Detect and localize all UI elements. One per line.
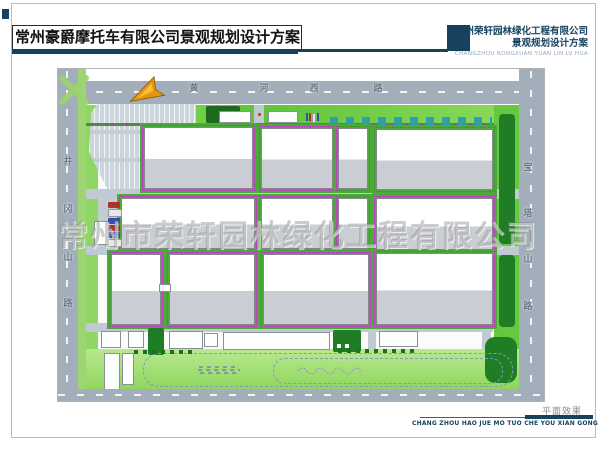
gatehouse: [268, 111, 298, 123]
shrub-blocks: [330, 117, 492, 126]
footer-caption-text: CHANG ZHOU HAO JUE MO TUO CHE YOU XIAN G…: [412, 420, 600, 427]
gate-flag: [258, 113, 261, 116]
firm-block: 常州荣轩园林绿化工程有限公司 景观规划设计方案 CHANGZHOU RONGXU…: [380, 26, 588, 59]
road-label-west-char: 井: [62, 157, 74, 168]
factory-building: [144, 127, 253, 189]
footer-rule-thin: [420, 417, 525, 418]
car: [312, 113, 316, 123]
factory-building: [376, 129, 493, 190]
car: [309, 113, 311, 121]
watermark-text: 常州市荣轩园林绿化工程有限公司: [58, 211, 538, 255]
page-title: 常州豪爵摩托车有限公司景观规划设计方案: [12, 25, 302, 50]
service-building: [204, 333, 218, 347]
road-label-east-char: 路: [522, 302, 534, 313]
service-building: [101, 331, 121, 348]
tree-row: [134, 350, 194, 354]
track-markings: [198, 369, 240, 371]
lane-marking: [58, 394, 544, 396]
track-markings: [200, 372, 238, 374]
road-label-north-char: 路: [372, 84, 384, 95]
car: [108, 202, 120, 208]
road-label-north-char: 西: [308, 84, 320, 95]
east-tree-band: [499, 255, 515, 327]
car: [306, 113, 308, 121]
factory-building: [169, 254, 255, 325]
parked-cars-row: [306, 113, 320, 123]
service-building: [169, 331, 203, 349]
road-label-north-char: 黄: [188, 84, 200, 95]
service-building: [104, 353, 120, 393]
tree-row: [338, 349, 418, 353]
road-label-north-char: 河: [258, 84, 270, 95]
road-south: [58, 389, 544, 401]
skylight: [345, 344, 349, 348]
footer-caption: CHANG ZHOU HAO JUE MO TUO CHE YOU XIAN G…: [412, 420, 598, 432]
firm-subtitle-en: CHANGZHOU RONGXUAN YUAN LIN LV HUA: [380, 50, 588, 59]
service-building: [128, 331, 144, 348]
footer-rule-thick: [525, 415, 593, 419]
factory-building: [376, 253, 493, 325]
internal-road-v4: [161, 254, 169, 331]
serpentine-track: [296, 365, 366, 377]
road-label-west-char: 路: [62, 299, 74, 310]
service-building-long: [223, 332, 330, 350]
factory-building: [261, 128, 333, 189]
gatehouse: [219, 111, 251, 123]
factory-building: [111, 254, 161, 325]
car: [317, 113, 319, 121]
skylight: [337, 344, 341, 348]
service-building: [122, 353, 134, 385]
factory-building: [338, 128, 368, 189]
road-label-east-char: 山: [522, 255, 534, 266]
title-underline: [12, 49, 298, 54]
link-bridge: [159, 284, 171, 292]
service-building: [379, 331, 418, 347]
corner-tab: [2, 9, 9, 19]
factory-building: [263, 254, 369, 325]
track-markings: [199, 366, 239, 368]
road-label-east-char: 宝: [522, 163, 534, 174]
firm-subtitle: 景观规划设计方案: [380, 38, 588, 50]
firm-name: 常州荣轩园林绿化工程有限公司: [380, 26, 588, 38]
